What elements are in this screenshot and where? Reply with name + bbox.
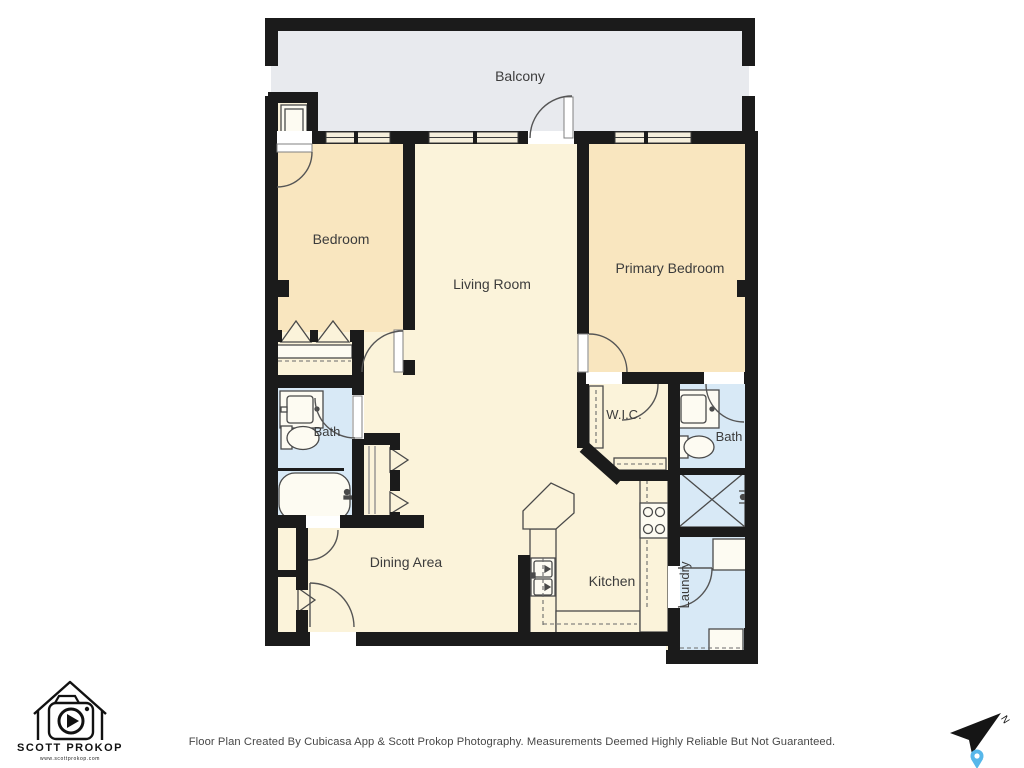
- north-label: N: [998, 714, 1011, 726]
- wall-column-left: [278, 280, 289, 297]
- primary-door-leaf: [578, 334, 588, 372]
- stove: [640, 503, 668, 538]
- kitchen-label: Kitchen: [589, 573, 636, 589]
- floor-plan: Balcony Bedroom Living Room Primary Bedr…: [0, 0, 1024, 768]
- storage-door-leaf: [277, 144, 312, 152]
- photographer-logo: SCOTT PROKOP www.scottprokop.com: [17, 682, 123, 762]
- wic-label: W.I.C.: [606, 407, 641, 422]
- logo-website: www.scottprokop.com: [40, 756, 100, 762]
- primary-bedroom-floor: [589, 144, 745, 374]
- washer: [713, 539, 746, 570]
- entry-opening: [310, 632, 356, 646]
- wall-column-right: [737, 280, 748, 297]
- floor-plan-page: Balcony Bedroom Living Room Primary Bedr…: [0, 0, 1024, 768]
- dining-area-label: Dining Area: [370, 554, 443, 570]
- windows: [326, 131, 691, 144]
- bath-left-door-leaf: [353, 396, 362, 438]
- living-room-label: Living Room: [453, 276, 531, 292]
- balcony-door-leaf: [564, 97, 573, 138]
- kitchen-sink: [527, 558, 555, 596]
- wic-opening: [586, 372, 622, 384]
- bath-left-label: Bath: [314, 424, 341, 439]
- primary-bedroom-label: Primary Bedroom: [616, 260, 725, 276]
- bedroom-door-leaf: [394, 330, 403, 372]
- bedroom-label: Bedroom: [313, 231, 370, 247]
- toilet-right: [677, 436, 714, 458]
- vanity-right: [677, 390, 719, 428]
- laundry-label: Laundry: [677, 561, 692, 608]
- bath-right-opening: [704, 372, 744, 384]
- footer-disclaimer: Floor Plan Created By Cubicasa App & Sco…: [0, 736, 1024, 748]
- bathtub: [279, 473, 352, 520]
- bath-right-label: Bath: [716, 429, 743, 444]
- balcony-label: Balcony: [495, 68, 545, 84]
